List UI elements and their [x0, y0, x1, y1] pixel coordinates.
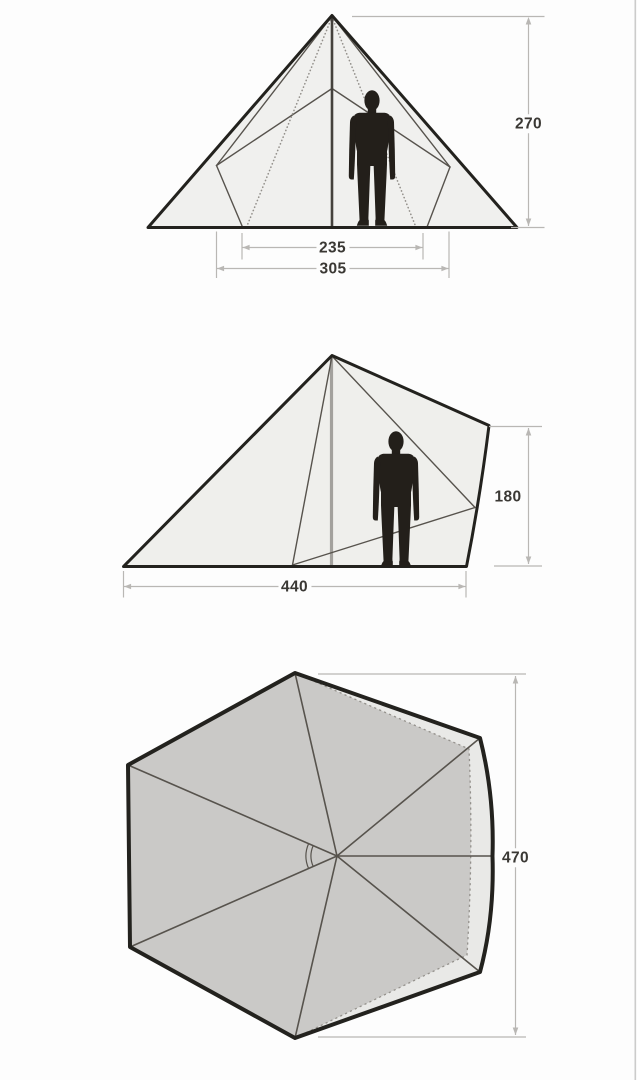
- top-view: [128, 673, 526, 1038]
- side-tent-panel: [124, 356, 490, 567]
- tent-dimension-diagram: 270 235 305 180 440 470: [0, 0, 637, 1080]
- top-width-dimension-label: 470: [499, 848, 532, 868]
- side-view: [124, 356, 543, 598]
- front-inner-width-dimension-label: 235: [316, 238, 349, 258]
- diagram-canvas: [0, 0, 637, 1080]
- side-floor-length-dimension-label: 440: [278, 577, 311, 597]
- front-floor-width-dimension-label: 305: [316, 259, 349, 279]
- front-height-dimension-label: 270: [512, 114, 545, 134]
- side-height-dimension-label: 180: [491, 487, 524, 507]
